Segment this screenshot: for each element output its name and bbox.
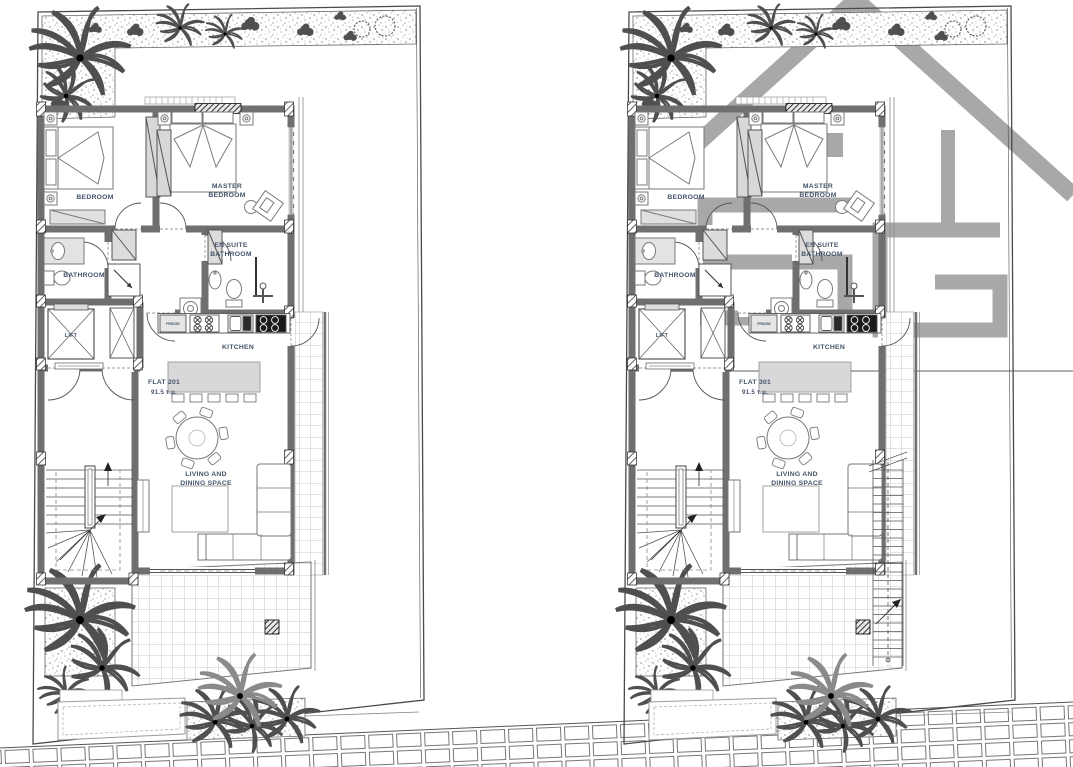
bedroom-label: BEDROOM	[667, 194, 704, 201]
master-bedroom-label-line1: MASTER	[803, 183, 833, 190]
living-dining-label-line1: LIVING AND	[776, 471, 818, 478]
living-dining-label-line2: DINING SPACE	[180, 480, 232, 487]
bathroom-label: BATHROOM	[63, 272, 105, 279]
flat-name-label: FLAT 201	[148, 379, 180, 386]
kitchen-label: KITCHEN	[222, 344, 254, 351]
floor-plan-canvas: BEDROOM MASTER BEDROOM BATHROOM EN SUITE…	[0, 0, 1073, 767]
ensuite-label-line2: BATHROOM	[210, 251, 252, 258]
flat-area-label: 91.5 τ.μ.	[151, 389, 177, 396]
flat-name-label: FLAT 301	[739, 379, 771, 386]
plan-flat-201	[25, 4, 424, 761]
bedroom-label: BEDROOM	[76, 194, 113, 201]
living-dining-label-line1: LIVING AND	[185, 471, 227, 478]
kitchen-label: KITCHEN	[813, 344, 845, 351]
lift-label: LIFT	[65, 333, 78, 339]
floor-plan-sheet: BEDROOM MASTER BEDROOM BATHROOM EN SUITE…	[0, 0, 1073, 767]
ensuite-label-line1: EN SUITE	[805, 242, 839, 249]
bathroom-label: BATHROOM	[654, 272, 696, 279]
plan-flat-301	[616, 4, 1015, 761]
master-bedroom-label-line2: BEDROOM	[799, 192, 836, 199]
ensuite-label-line1: EN SUITE	[214, 242, 248, 249]
living-dining-label-line2: DINING SPACE	[771, 480, 823, 487]
flat-area-label: 91.5 τ.μ.	[742, 389, 768, 396]
master-bedroom-label-line2: BEDROOM	[208, 192, 245, 199]
fridge-label: FRIDGE	[757, 322, 771, 326]
ensuite-label-line2: BATHROOM	[801, 251, 843, 258]
master-bedroom-label-line1: MASTER	[212, 183, 242, 190]
lift-label: LIFT	[656, 333, 669, 339]
fridge-label: FRIDGE	[166, 322, 180, 326]
